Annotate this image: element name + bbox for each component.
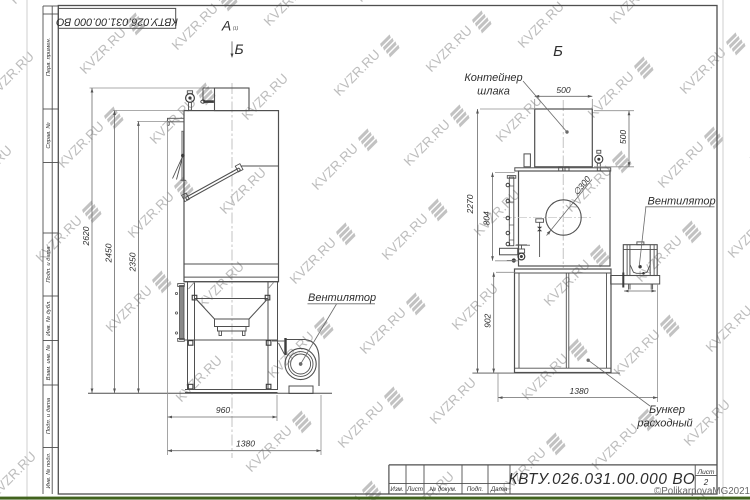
svg-text:Подп. и дата: Подп. и дата	[46, 246, 52, 283]
svg-text:расходный: расходный	[636, 418, 692, 430]
svg-text:902: 902	[483, 313, 493, 327]
svg-text:шлака: шлака	[477, 86, 510, 98]
svg-text:804: 804	[482, 211, 492, 225]
svg-text:1380: 1380	[236, 439, 255, 449]
svg-text:(1): (1)	[233, 26, 239, 31]
svg-text:500: 500	[556, 85, 570, 95]
svg-text:Инв. № подл.: Инв. № подл.	[46, 453, 52, 489]
svg-text:Инв. № дубл.: Инв. № дубл.	[46, 300, 52, 336]
svg-text:2270: 2270	[465, 194, 475, 214]
svg-text:Подп.: Подп.	[467, 486, 483, 493]
svg-text:Б: Б	[234, 41, 243, 57]
svg-text:Взам. инв. №: Взам. инв. №	[46, 345, 52, 381]
svg-text:Дата: Дата	[490, 486, 508, 493]
svg-text:©PolikarpovaMG2021: ©PolikarpovaMG2021	[654, 486, 750, 497]
svg-text:Перв. примен.: Перв. примен.	[46, 38, 52, 77]
svg-text:Вентилятор: Вентилятор	[308, 292, 376, 304]
svg-text:Лист: Лист	[697, 469, 715, 476]
svg-text:Б: Б	[553, 43, 563, 60]
svg-text:КВТУ.026.031.00.000 ВО: КВТУ.026.031.00.000 ВО	[55, 16, 178, 28]
svg-text:Изм.: Изм.	[390, 486, 403, 493]
svg-text:Вентилятор: Вентилятор	[648, 196, 716, 208]
svg-text:960: 960	[216, 405, 230, 415]
svg-text:Бункер: Бункер	[649, 404, 685, 416]
svg-text:Подп. и дата: Подп. и дата	[46, 397, 52, 434]
svg-text:500: 500	[618, 130, 628, 144]
svg-text:Лист: Лист	[406, 486, 423, 493]
svg-text:№ докум.: № докум.	[429, 486, 456, 493]
svg-text:2350: 2350	[128, 252, 138, 272]
svg-text:Контейнер: Контейнер	[464, 72, 522, 84]
svg-text:2450: 2450	[104, 243, 114, 263]
svg-text:1380: 1380	[570, 386, 589, 396]
svg-text:Справ. №: Справ. №	[46, 122, 52, 148]
svg-text:2620: 2620	[81, 226, 91, 246]
svg-text:А: А	[221, 18, 231, 34]
